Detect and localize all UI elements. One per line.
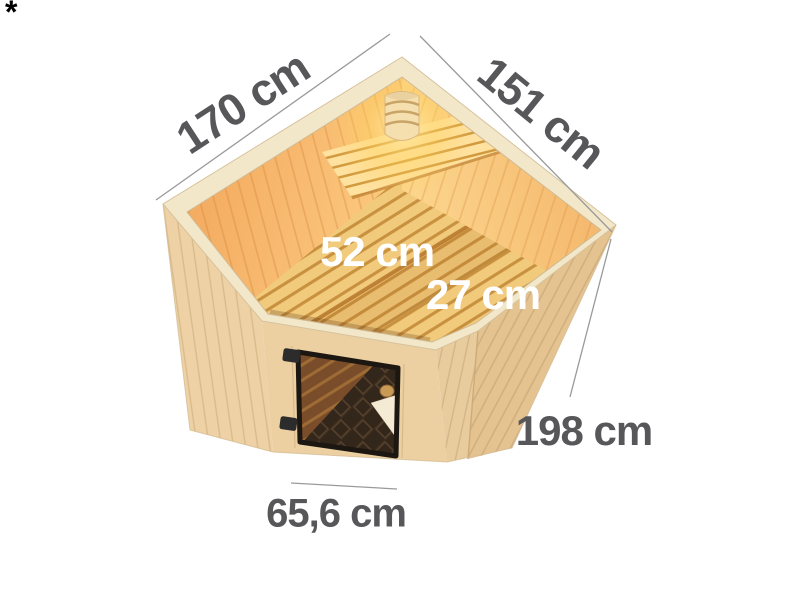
door-handle-knob [380, 385, 394, 397]
dimension-line-656 [291, 483, 397, 489]
dimension-label-wall-height: 198 cm [516, 407, 652, 455]
door-hinge-bottom [279, 416, 298, 431]
dimension-label-bench-step-depth: 27 cm [426, 271, 540, 319]
dimension-label-door-width: 65,6 cm [266, 492, 406, 537]
sauna-light [385, 92, 419, 141]
footnote-asterisk: * [5, 0, 17, 31]
dimension-label-bench-depth: 52 cm [320, 228, 434, 276]
sauna-dimension-figure: * 170 cm 151 cm 52 cm 27 cm 198 cm 65,6 … [0, 0, 800, 600]
door-hinge-top [282, 348, 301, 363]
